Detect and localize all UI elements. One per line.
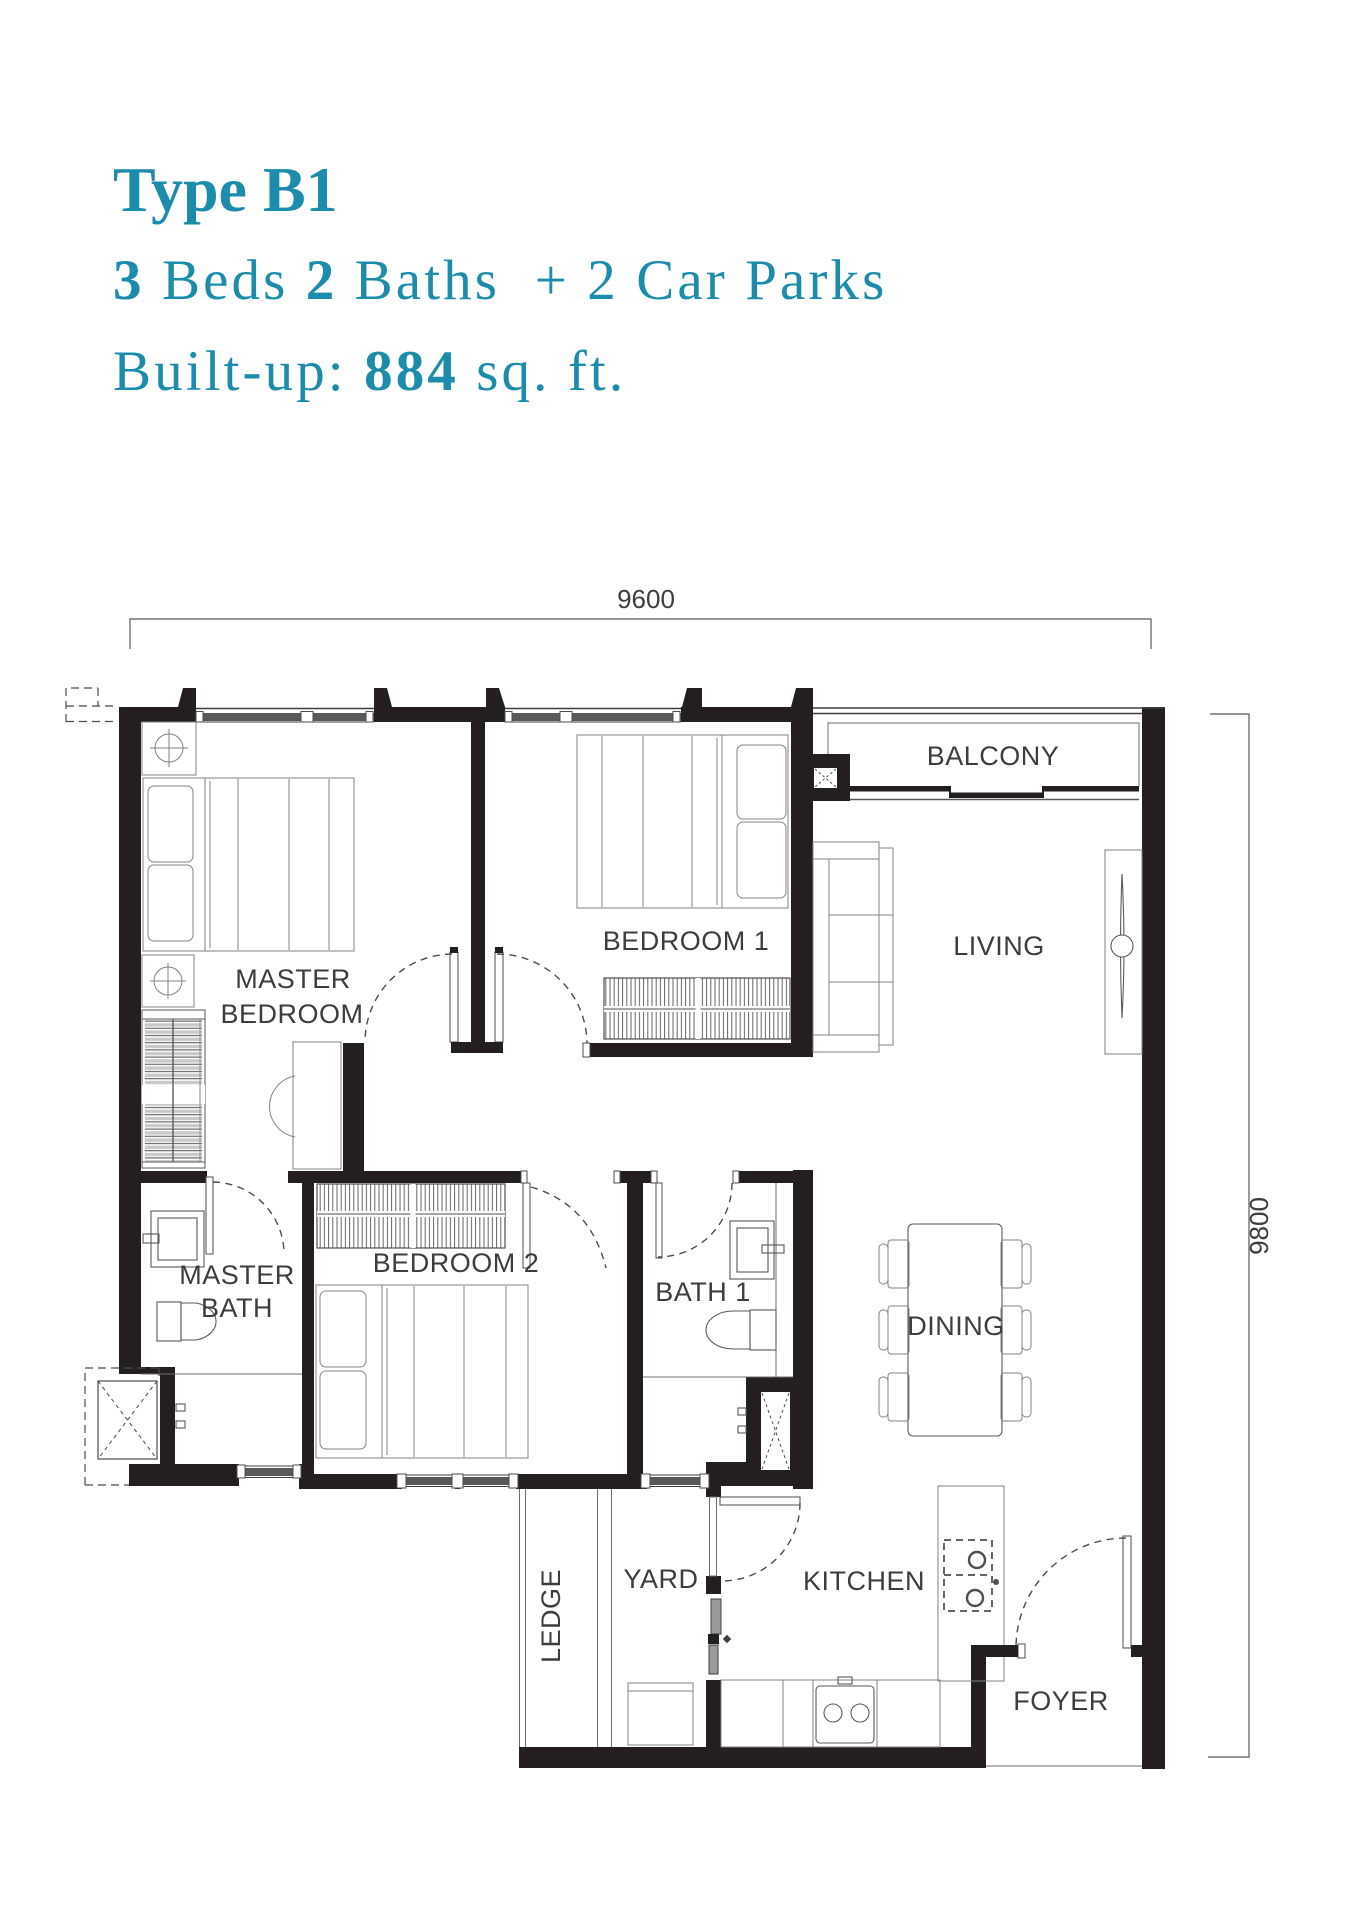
svg-text:BEDROOM 1: BEDROOM 1 [603,926,770,956]
svg-text:3 Beds 2 Baths + 2 Car Parks: 3 Beds 2 Baths + 2 Car Parks [113,249,887,312]
svg-text:YARD: YARD [623,1564,698,1594]
svg-text:KITCHEN: KITCHEN [803,1566,925,1596]
svg-text:LEDGE: LEDGE [536,1569,566,1663]
svg-text:MASTER: MASTER [235,964,351,994]
svg-text:9800: 9800 [1244,1197,1274,1255]
svg-text:Built-up: 884 sq. ft.: Built-up: 884 sq. ft. [113,340,626,403]
svg-text:MASTER: MASTER [179,1260,295,1290]
svg-text:BATH: BATH [201,1293,273,1323]
svg-text:BALCONY: BALCONY [927,741,1060,771]
svg-text:9600: 9600 [617,584,675,614]
svg-text:BATH 1: BATH 1 [655,1277,751,1307]
svg-text:BEDROOM: BEDROOM [220,999,363,1029]
svg-text:LIVING: LIVING [953,931,1045,961]
svg-text:BEDROOM 2: BEDROOM 2 [373,1248,540,1278]
svg-text:FOYER: FOYER [1013,1686,1109,1716]
svg-text:Type B1: Type B1 [113,154,338,225]
svg-text:DINING: DINING [907,1311,1005,1341]
